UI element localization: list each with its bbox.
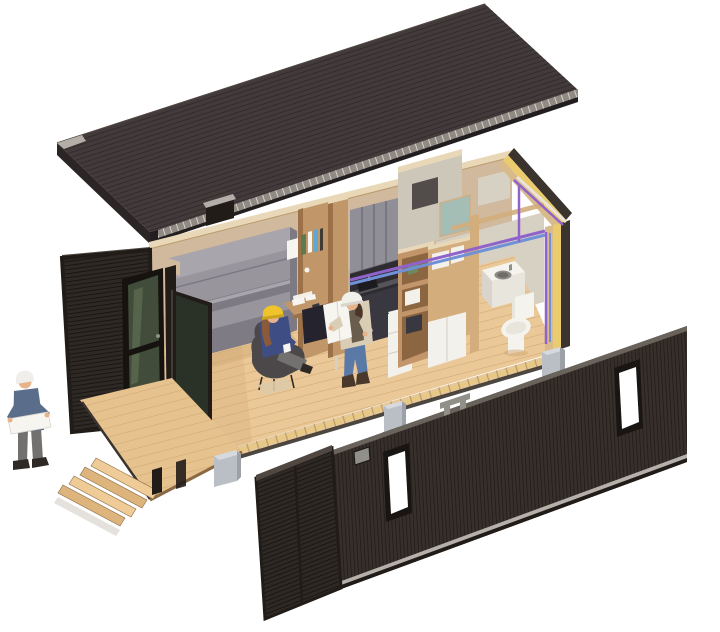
architect-leg-left (18, 429, 28, 463)
deck-support-post-2 (176, 459, 186, 489)
bathroom-post (470, 214, 479, 354)
panel-window-right (614, 359, 643, 437)
book-green (301, 234, 306, 255)
book-white (308, 231, 312, 253)
book-dark (320, 228, 323, 251)
sink-faucet (509, 264, 512, 271)
louver-screen-panel (256, 445, 341, 619)
bird-figurine (305, 268, 310, 273)
bathroom-glazed-panel (440, 195, 470, 237)
shelf-white-box (287, 238, 298, 260)
render-canvas: Exploded axonometric cutaway rendering o… (0, 0, 720, 632)
exploded-container-house-rendering: Exploded axonometric cutaway rendering o… (0, 0, 720, 632)
panel-window-left (383, 443, 412, 522)
deck-support-post (152, 467, 162, 495)
book-blue (314, 229, 318, 252)
architect-leg-right (31, 428, 43, 461)
door-handle (156, 334, 160, 338)
